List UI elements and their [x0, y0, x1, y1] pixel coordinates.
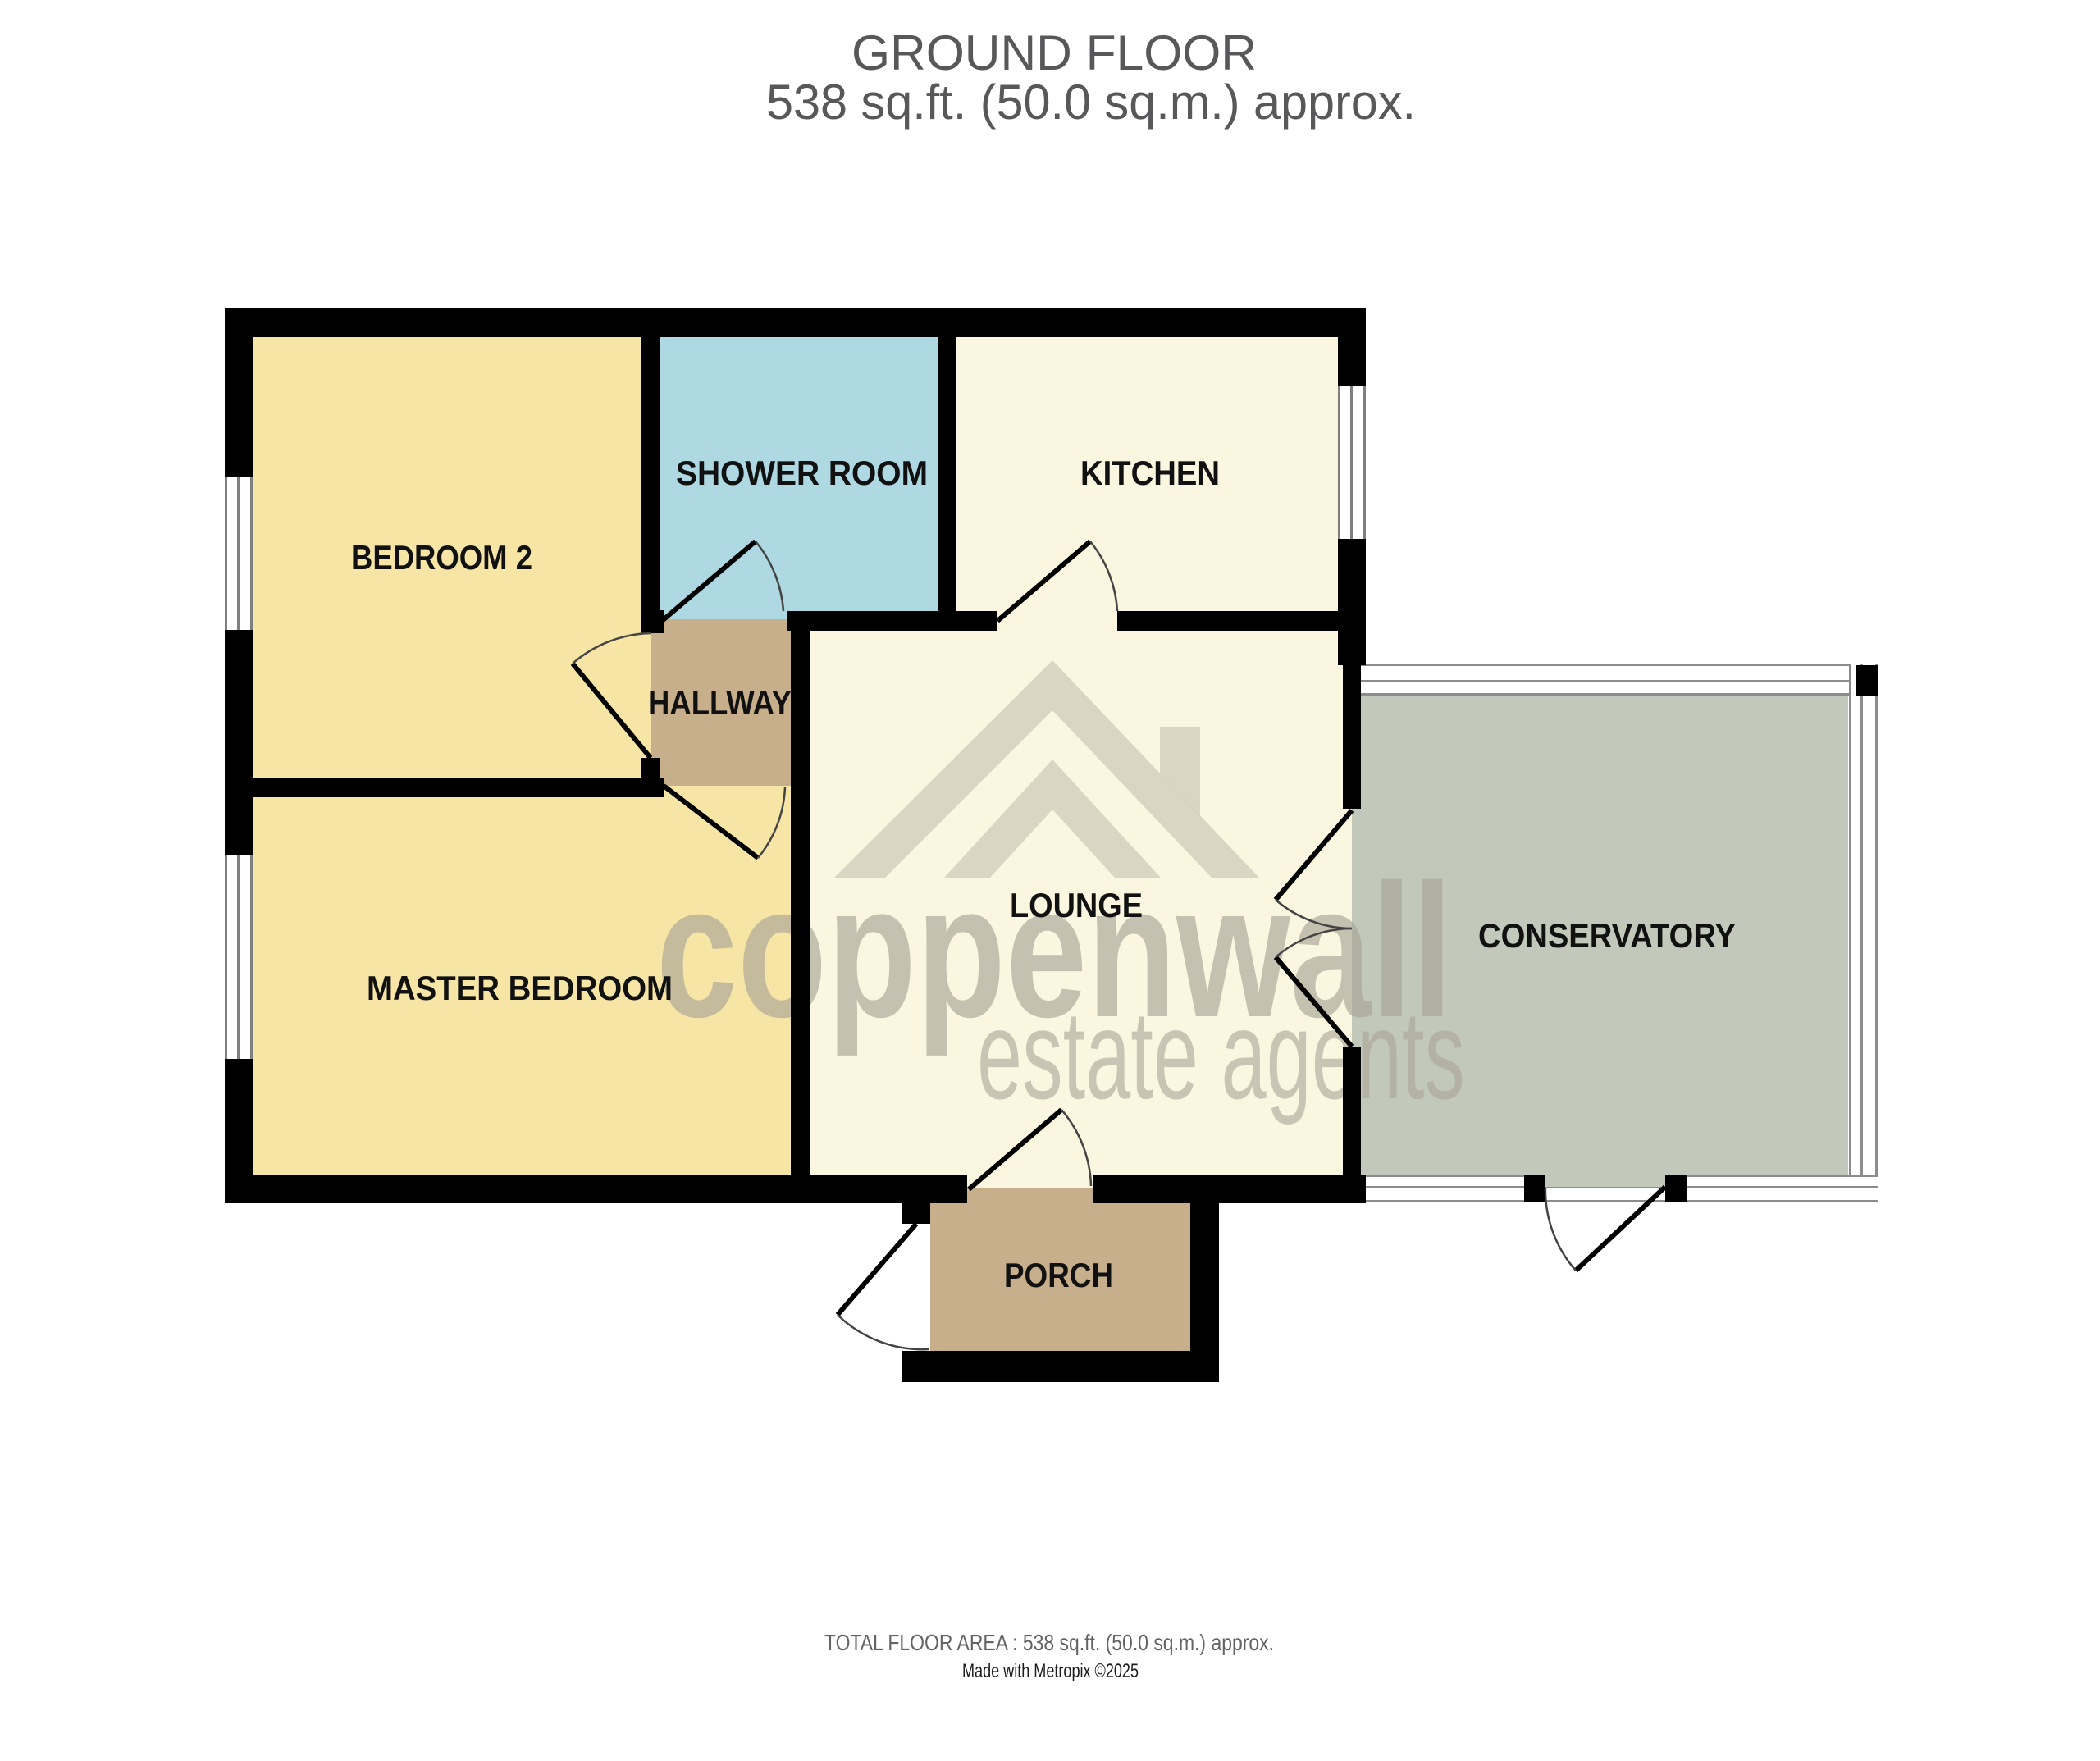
svg-text:LOUNGE: LOUNGE — [1010, 886, 1143, 924]
svg-text:estate agents: estate agents — [977, 984, 1465, 1125]
svg-text:538 sq.ft. (50.0 sq.m.) approx: 538 sq.ft. (50.0 sq.m.) approx. — [766, 75, 1416, 130]
svg-text:MASTER BEDROOM: MASTER BEDROOM — [367, 969, 673, 1007]
svg-text:PORCH: PORCH — [1004, 1256, 1113, 1294]
svg-text:HALLWAY: HALLWAY — [648, 683, 792, 722]
svg-text:Made with Metropix ©2025: Made with Metropix ©2025 — [962, 1660, 1139, 1682]
svg-text:BEDROOM 2: BEDROOM 2 — [351, 538, 532, 577]
svg-text:SHOWER ROOM: SHOWER ROOM — [676, 454, 928, 492]
svg-text:CONSERVATORY: CONSERVATORY — [1478, 916, 1736, 955]
svg-text:TOTAL FLOOR AREA : 538 sq.ft.: TOTAL FLOOR AREA : 538 sq.ft. (50.0 sq.m… — [824, 1630, 1274, 1655]
svg-text:KITCHEN: KITCHEN — [1080, 454, 1220, 492]
svg-text:GROUND FLOOR: GROUND FLOOR — [851, 25, 1257, 80]
